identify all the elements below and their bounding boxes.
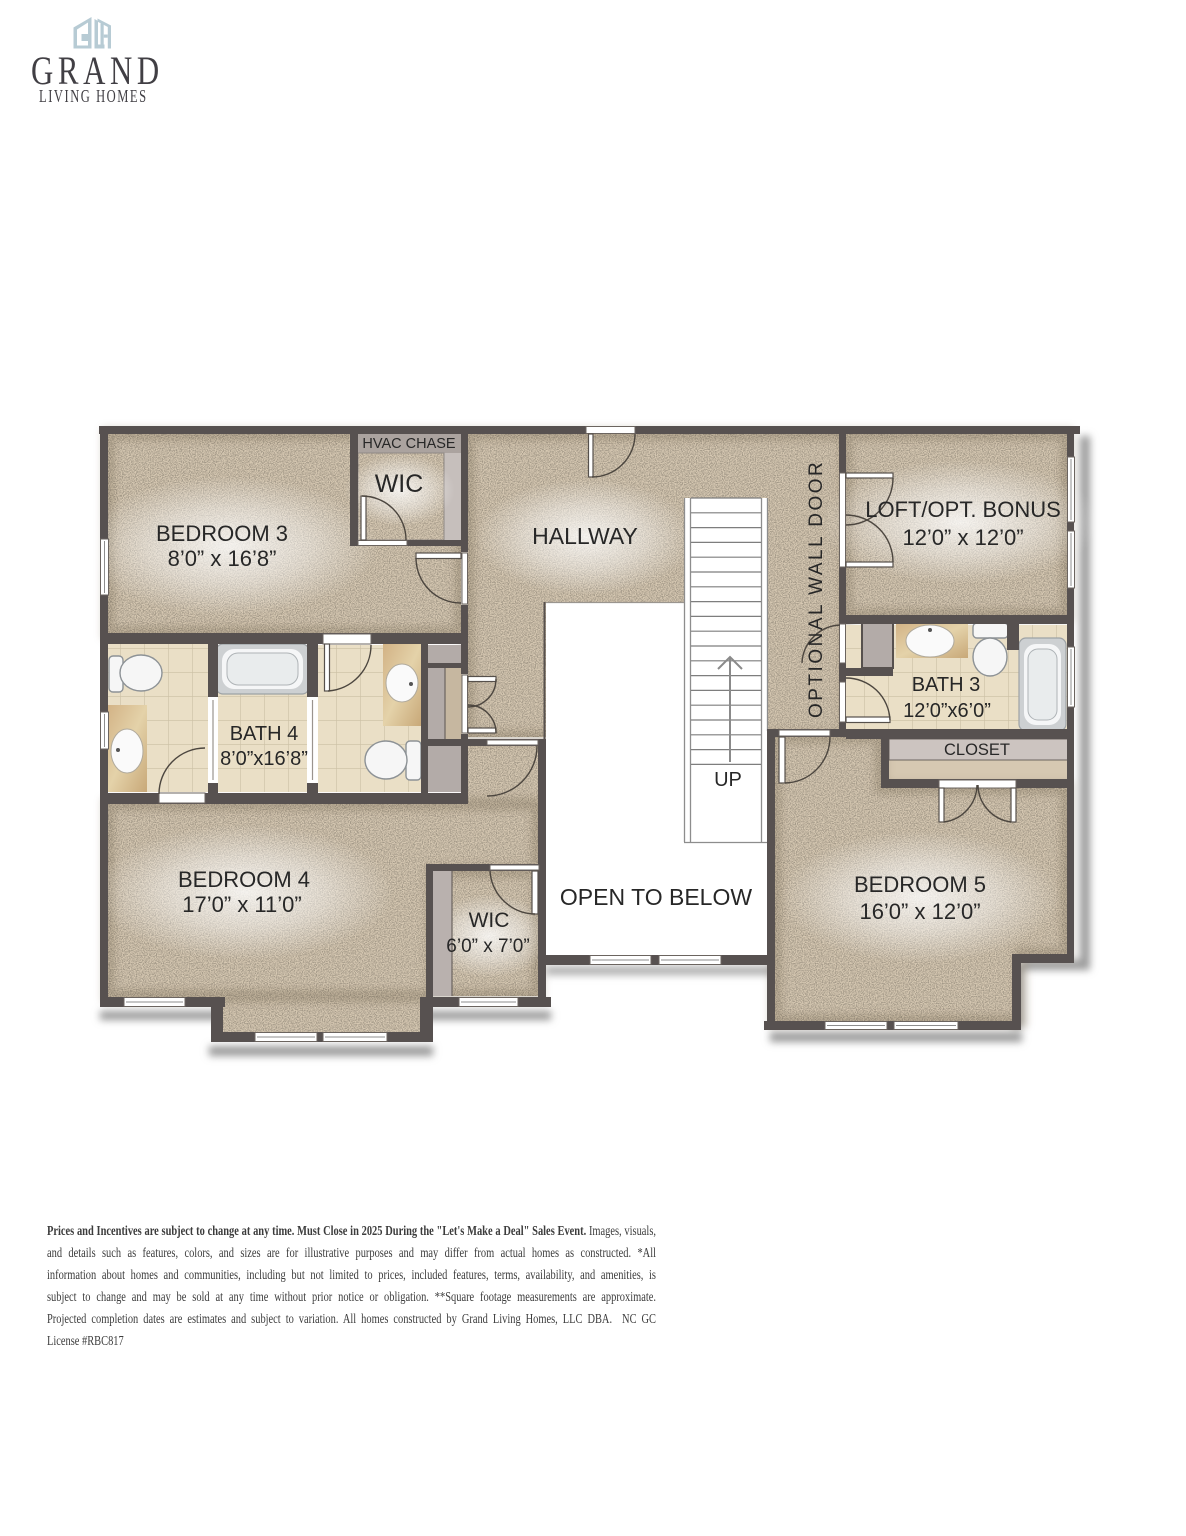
svg-text:BEDROOM 4: BEDROOM 4 xyxy=(178,867,310,892)
svg-text:8’0” x 16’8”: 8’0” x 16’8” xyxy=(168,546,277,571)
svg-text:BEDROOM 5: BEDROOM 5 xyxy=(854,872,986,897)
svg-text:6’0” x 7’0”: 6’0” x 7’0” xyxy=(446,936,529,957)
svg-text:WIC: WIC xyxy=(469,909,510,932)
svg-text:BATH 4: BATH 4 xyxy=(230,723,299,745)
svg-text:WIC: WIC xyxy=(375,470,424,498)
svg-text:HALLWAY: HALLWAY xyxy=(532,523,638,549)
svg-text:UP: UP xyxy=(714,769,742,791)
svg-text:17’0” x 11’0”: 17’0” x 11’0” xyxy=(182,892,301,917)
svg-text:BEDROOM 3: BEDROOM 3 xyxy=(156,521,288,546)
svg-text:HVAC CHASE: HVAC CHASE xyxy=(362,436,456,452)
svg-text:12’0”x6’0”: 12’0”x6’0” xyxy=(903,700,991,722)
svg-text:16’0” x 12’0”: 16’0” x 12’0” xyxy=(859,899,980,924)
svg-text:12’0” x 12’0”: 12’0” x 12’0” xyxy=(902,525,1023,550)
svg-text:OPTIONAL WALL DOOR: OPTIONAL WALL DOOR xyxy=(806,460,827,718)
svg-text:OPEN TO BELOW: OPEN TO BELOW xyxy=(560,884,752,910)
svg-text:8’0”x16’8”: 8’0”x16’8” xyxy=(220,748,308,770)
svg-text:CLOSET: CLOSET xyxy=(944,741,1010,759)
svg-text:LOFT/OPT. BONUS: LOFT/OPT. BONUS xyxy=(865,497,1061,522)
svg-text:BATH 3: BATH 3 xyxy=(912,674,981,696)
